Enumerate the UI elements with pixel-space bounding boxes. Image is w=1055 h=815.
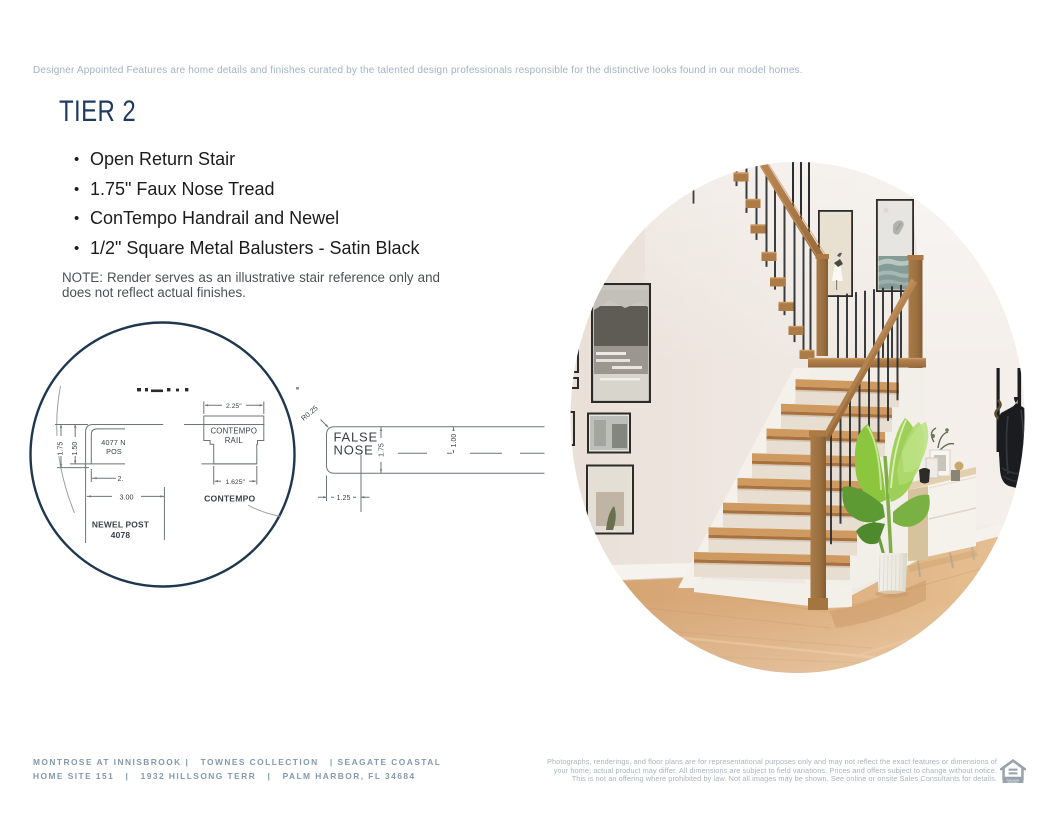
svg-text:NOSE: NOSE xyxy=(334,443,374,458)
svg-text:2.: 2. xyxy=(118,474,124,483)
svg-text:2.25″: 2.25″ xyxy=(226,403,242,410)
svg-text:4077 N: 4077 N xyxy=(101,438,125,447)
svg-text:1.50: 1.50 xyxy=(72,442,79,456)
svg-text:RAIL: RAIL xyxy=(225,436,244,445)
svg-text:1.25: 1.25 xyxy=(337,493,351,502)
svg-text:POS: POS xyxy=(106,447,122,456)
svg-text:CONTEMPO: CONTEMPO xyxy=(204,494,255,504)
svg-text:OPPORTUNITY: OPPORTUNITY xyxy=(1008,782,1019,784)
svg-text:R0.25: R0.25 xyxy=(299,403,319,422)
svg-text:1.00: 1.00 xyxy=(451,434,458,448)
svg-text:1.75: 1.75 xyxy=(379,443,386,457)
svg-text:NEWEL POST: NEWEL POST xyxy=(92,519,150,529)
svg-text:3.00: 3.00 xyxy=(120,492,134,501)
svg-text:1.625″: 1.625″ xyxy=(225,479,245,486)
svg-text:CONTEMPO: CONTEMPO xyxy=(210,427,257,436)
svg-text:4078: 4078 xyxy=(111,530,131,540)
svg-text:1.75: 1.75 xyxy=(58,442,65,456)
